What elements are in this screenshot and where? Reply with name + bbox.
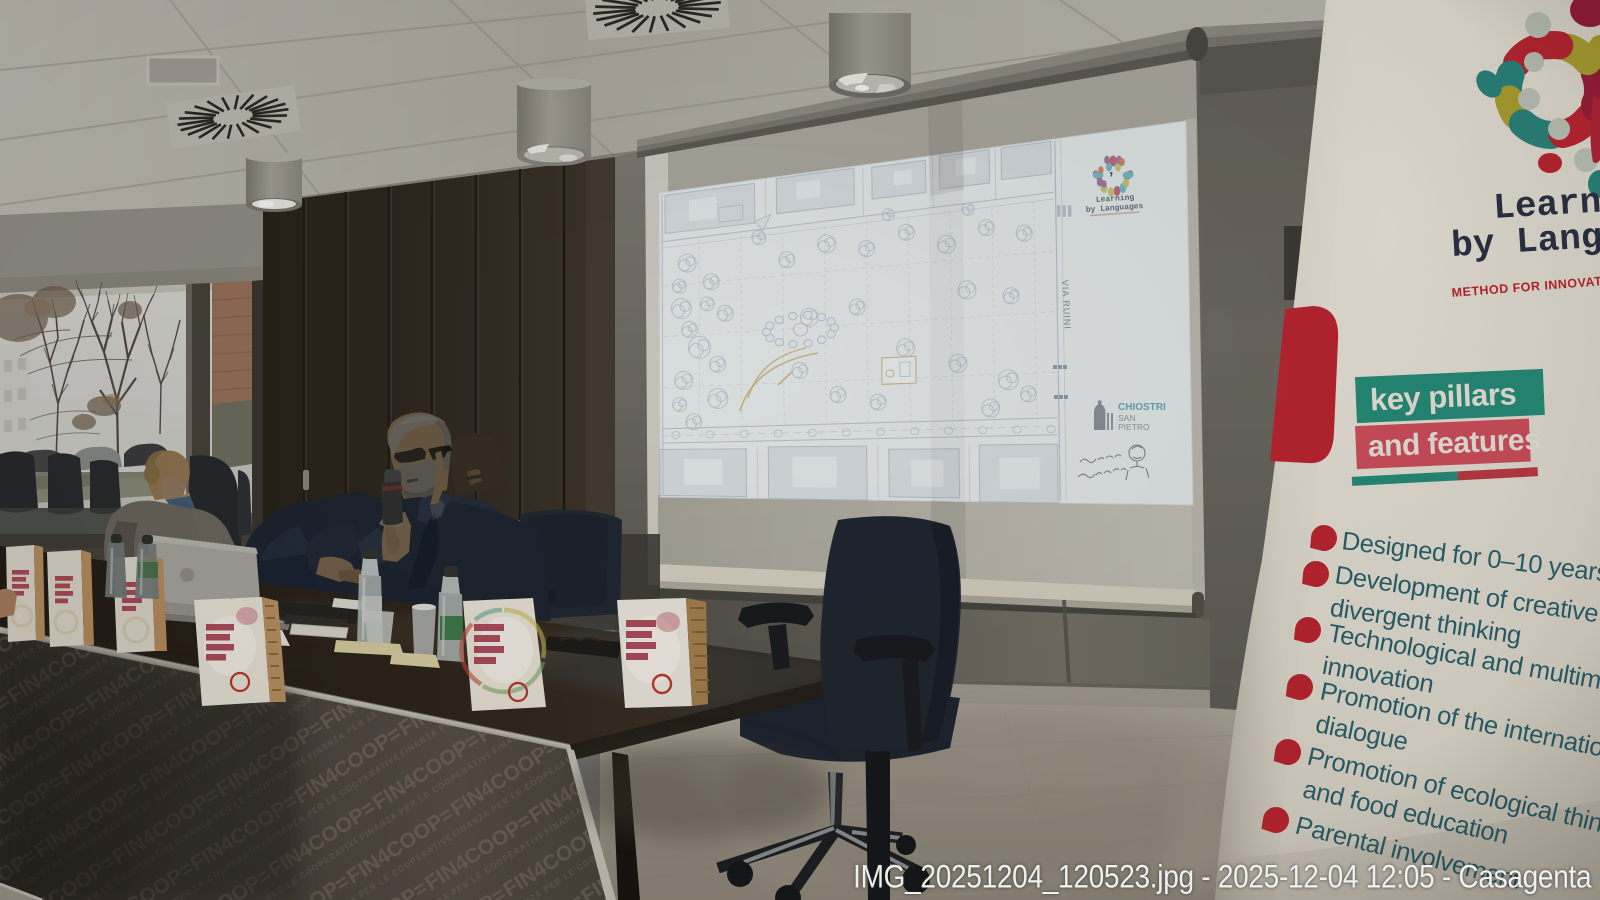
svg-text:IMG_20251204_120523.jpg - 2025: IMG_20251204_120523.jpg - 2025-12-04 12:… [853, 860, 1592, 895]
